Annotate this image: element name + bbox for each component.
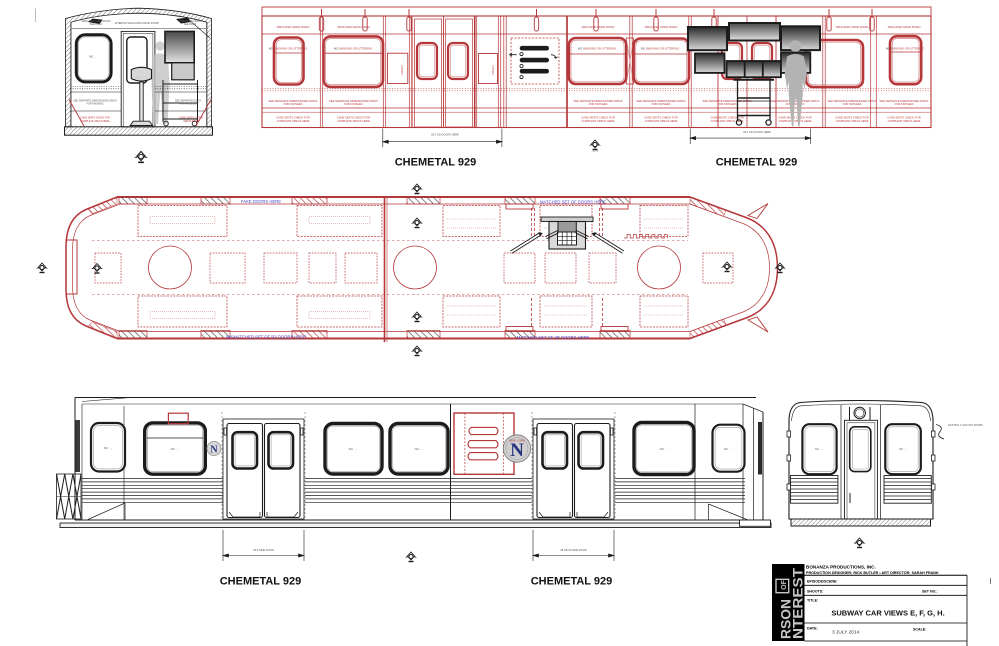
svg-text:50.5 OD DOORS HERE: 50.5 OD DOORS HERE	[431, 133, 459, 137]
svg-text:PRODUCTION DESIGNER: RICK BUTL: PRODUCTION DESIGNER: RICK BUTLER • ART D…	[806, 571, 939, 575]
svg-text:JOIN: JOIN	[592, 150, 598, 153]
svg-text:FOR FINISHES: FOR FINISHES	[180, 103, 197, 106]
svg-text:SIMULATED GRAIN FINISH: SIMULATED GRAIN FINISH	[645, 25, 678, 29]
svg-text:EXISTING 4 CAR UNIT SHOWN: EXISTING 4 CAR UNIT SHOWN	[948, 424, 983, 427]
svg-text:INTERIOR SIMULATED GRAIN FINIS: INTERIOR SIMULATED GRAIN FINISH	[115, 22, 159, 25]
svg-text:NO ....: NO ....	[89, 55, 97, 59]
svg-text:COMPLETE SPECS HERE: COMPLETE SPECS HERE	[779, 119, 812, 123]
svg-text:NO ....: NO ....	[415, 447, 424, 451]
svg-text:CHEMETAL 929: CHEMETAL 929	[220, 576, 302, 588]
svg-text:50.5 SIDE DOOR: 50.5 SIDE DOOR	[253, 548, 273, 552]
svg-text:CHEMETAL 929: CHEMETAL 929	[395, 157, 477, 169]
svg-text:NO ....: NO ....	[660, 447, 669, 451]
svg-text:FOR FINISHES: FOR FINISHES	[895, 102, 914, 106]
svg-text:SUBWAY CAR VIEWS E, F, G, H.: SUBWAY CAR VIEWS E, F, G, H.	[831, 609, 944, 618]
svg-text:SIMULATED GRAIN FINISH: SIMULATED GRAIN FINISH	[81, 20, 110, 23]
svg-text:CHEMETAL 929: CHEMETAL 929	[531, 576, 613, 588]
svg-text:ADVERT: ADVERT	[401, 65, 404, 75]
svg-text:NO ....: NO ....	[815, 448, 823, 451]
svg-text:SEE DWGS: SEE DWGS	[184, 24, 197, 26]
svg-text:FAKE DOORS HERE: FAKE DOORS HERE	[241, 199, 281, 204]
svg-text:NO SMOKING OR LITTERING: NO SMOKING OR LITTERING	[269, 47, 308, 51]
svg-text:48 OR 50 SIDE DOOR: 48 OR 50 SIDE DOOR	[560, 548, 587, 552]
svg-text:BONANZA PRODUCTIONS, INC.: BONANZA PRODUCTIONS, INC.	[806, 565, 876, 570]
svg-text:SIMULATED GRAIN FINISH: SIMULATED GRAIN FINISH	[277, 25, 310, 29]
svg-text:SET NO.:: SET NO.:	[922, 589, 938, 593]
svg-text:3 JULY 2014: 3 JULY 2014	[832, 630, 860, 636]
svg-text:NO SMOKING OR LITTERING: NO SMOKING OR LITTERING	[886, 47, 925, 51]
svg-text:NO ....: NO ....	[899, 448, 907, 451]
svg-text:NTEREST: NTEREST	[791, 567, 806, 639]
svg-text:COMPLETE SPECS HERE: COMPLETE SPECS HERE	[80, 120, 110, 123]
svg-text:SIMULATED GRAIN FINISH: SIMULATED GRAIN FINISH	[337, 25, 370, 29]
svg-text:NO ....: NO ....	[724, 447, 732, 451]
svg-text:COMPLETE SPECS HERE: COMPLETE SPECS HERE	[836, 119, 869, 123]
svg-text:COMPLETE SPECS HERE: COMPLETE SPECS HERE	[277, 119, 310, 123]
svg-text:FOR FINISHES: FOR FINISHES	[284, 102, 303, 106]
svg-text:FOR FINISHES: FOR FINISHES	[843, 102, 862, 106]
svg-text:FOR FINISHES: FOR FINISHES	[718, 102, 737, 106]
svg-text:NO SMOKING OR LITTERING: NO SMOKING OR LITTERING	[578, 47, 617, 51]
svg-text:NO SMOKING OR LITTERING: NO SMOKING OR LITTERING	[334, 47, 373, 51]
svg-text:NO SMOKING OR LITTERING: NO SMOKING OR LITTERING	[641, 47, 680, 51]
svg-text:FOR FINISHES: FOR FINISHES	[589, 102, 608, 106]
svg-text:OF: OF	[781, 579, 788, 589]
svg-text:N: N	[510, 440, 524, 461]
svg-text:COMPLETE SPECS HERE: COMPLETE SPECS HERE	[645, 119, 678, 123]
svg-text:NO ....: NO ....	[171, 447, 180, 451]
svg-text:FOR FINISHES: FOR FINISHES	[652, 102, 671, 106]
svg-text:COMPLETE SPECS HERE: COMPLETE SPECS HERE	[582, 119, 615, 123]
svg-text:SIMULATED GRAIN FINISH: SIMULATED GRAIN FINISH	[582, 25, 615, 29]
svg-text:SEE DWGS: SEE DWGS	[90, 24, 103, 26]
svg-text:MISMATCHED SET OF 50' DOORS HE: MISMATCHED SET OF 50' DOORS HERE	[226, 335, 306, 340]
svg-text:EPISODE/SCENE:: EPISODE/SCENE:	[807, 580, 838, 584]
svg-text:SCALE:: SCALE:	[913, 628, 926, 632]
svg-text:SIMULATED GRAIN FINISH: SIMULATED GRAIN FINISH	[836, 25, 869, 29]
svg-text:SPECS HERE: SPECS HERE	[183, 120, 199, 123]
svg-text:NEW YORK: NEW YORK	[509, 439, 525, 443]
svg-text:.... .... ....: .... .... ....	[90, 82, 100, 85]
svg-text:N: N	[210, 445, 218, 456]
svg-text:DATE:: DATE:	[807, 627, 818, 631]
svg-text:FOR FINISHES: FOR FINISHES	[344, 102, 363, 106]
svg-text:ADVERT: ADVERT	[492, 65, 495, 75]
svg-text:29.5 OD DOORS HERE: 29.5 OD DOORS HERE	[743, 130, 771, 134]
svg-text:SIMULATED GRAIN FINISH: SIMULATED GRAIN FINISH	[888, 25, 921, 29]
svg-text:COMPLETE SPECS HERE: COMPLETE SPECS HERE	[337, 119, 370, 123]
svg-text:.... ....: .... ....	[136, 76, 142, 79]
svg-text:SHOOTS:: SHOOTS:	[807, 589, 823, 593]
svg-text:SIMULATED GRAIN: SIMULATED GRAIN	[180, 20, 201, 23]
svg-text:MATCHED SET OF DOORS HERE: MATCHED SET OF DOORS HERE	[540, 200, 606, 205]
svg-text:FOR FINISHES: FOR FINISHES	[87, 103, 104, 106]
svg-text:COMPLETE SPECS HERE: COMPLETE SPECS HERE	[888, 119, 921, 123]
svg-text:NO ....: NO ....	[104, 446, 112, 450]
svg-text:NO ....: NO ....	[349, 447, 358, 451]
svg-text:TITLE:: TITLE:	[807, 599, 818, 603]
svg-text:CHEMETAL 929: CHEMETAL 929	[716, 157, 798, 169]
svg-text:MATCHED SET OF 48' DOORS HERE: MATCHED SET OF 48' DOORS HERE	[517, 335, 590, 340]
